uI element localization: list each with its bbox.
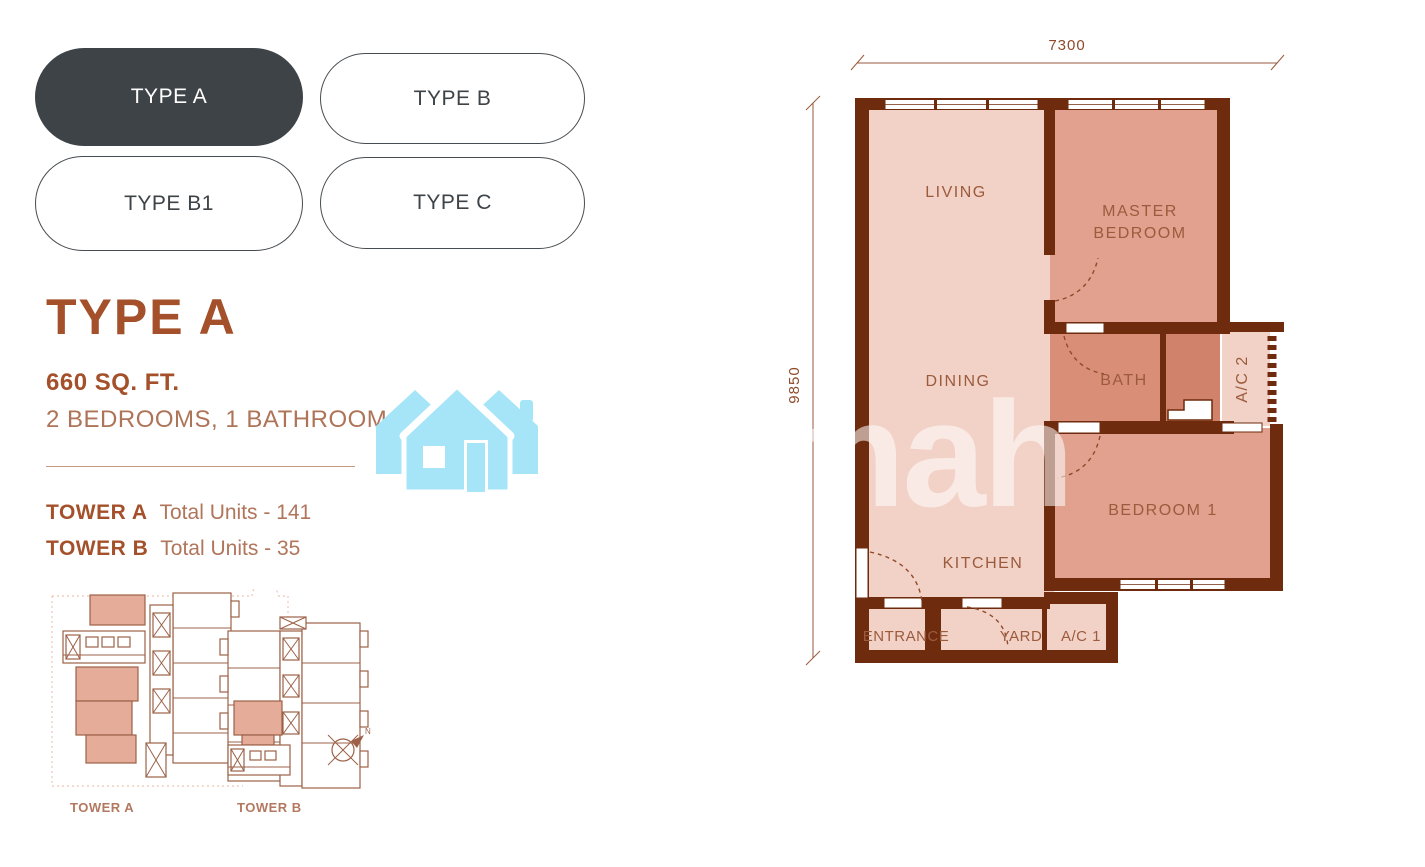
unit-config: 2 BEDROOMS, 1 BATHROOM: [46, 406, 387, 434]
tower-b-name: TOWER B: [46, 537, 148, 560]
label-dining: DINING: [926, 373, 991, 390]
house-logo-icon: [368, 370, 546, 498]
dim-left-value: 9850: [786, 366, 803, 403]
unit-title: TYPE A: [46, 288, 237, 346]
tower-a-name: TOWER A: [46, 501, 148, 524]
type-b1-button[interactable]: TYPE B1: [35, 156, 303, 251]
dim-top-value: 7300: [1048, 37, 1085, 54]
tower-b-count: Total Units - 35: [160, 537, 300, 560]
tower-b-units: TOWER BTotal Units - 35: [46, 537, 300, 561]
label-kitchen: KITCHEN: [943, 555, 1024, 572]
dimension-left: 9850: [786, 96, 820, 665]
dimension-top: 7300: [851, 37, 1284, 70]
label-ac1: A/C 1: [1061, 628, 1101, 645]
type-b-button[interactable]: TYPE B: [320, 53, 585, 144]
label-living: LIVING: [925, 184, 986, 201]
label-master-1: MASTER: [1102, 203, 1178, 220]
tower-a-units: TOWER ATotal Units - 141: [46, 501, 311, 525]
site-tower-b: [220, 617, 368, 788]
label-bath: BATH: [1100, 372, 1147, 389]
page: TYPE A TYPE B TYPE B1 TYPE C TYPE A 660 …: [0, 0, 1425, 867]
tower-a-count: Total Units - 141: [160, 501, 312, 524]
type-c-button[interactable]: TYPE C: [320, 157, 585, 249]
floor-plan: 7300 9850 LIVING MASTER BEDROOM DINING B…: [770, 20, 1330, 710]
site-tower-b-label: TOWER B: [237, 800, 302, 815]
site-plan: N: [38, 588, 383, 793]
label-yard: YARD: [1000, 628, 1043, 645]
label-bedroom1: BEDROOM 1: [1108, 502, 1218, 519]
site-tower-a: [63, 593, 239, 777]
compass-north-label: N: [365, 727, 371, 736]
unit-area: 660 SQ. FT.: [46, 369, 180, 397]
divider: [46, 466, 355, 467]
site-tower-a-label: TOWER A: [70, 800, 134, 815]
label-entrance: ENTRANCE: [863, 628, 950, 645]
label-master-2: BEDROOM: [1093, 225, 1186, 242]
type-a-button[interactable]: TYPE A: [35, 48, 303, 146]
label-ac2: A/C 2: [1234, 355, 1251, 403]
